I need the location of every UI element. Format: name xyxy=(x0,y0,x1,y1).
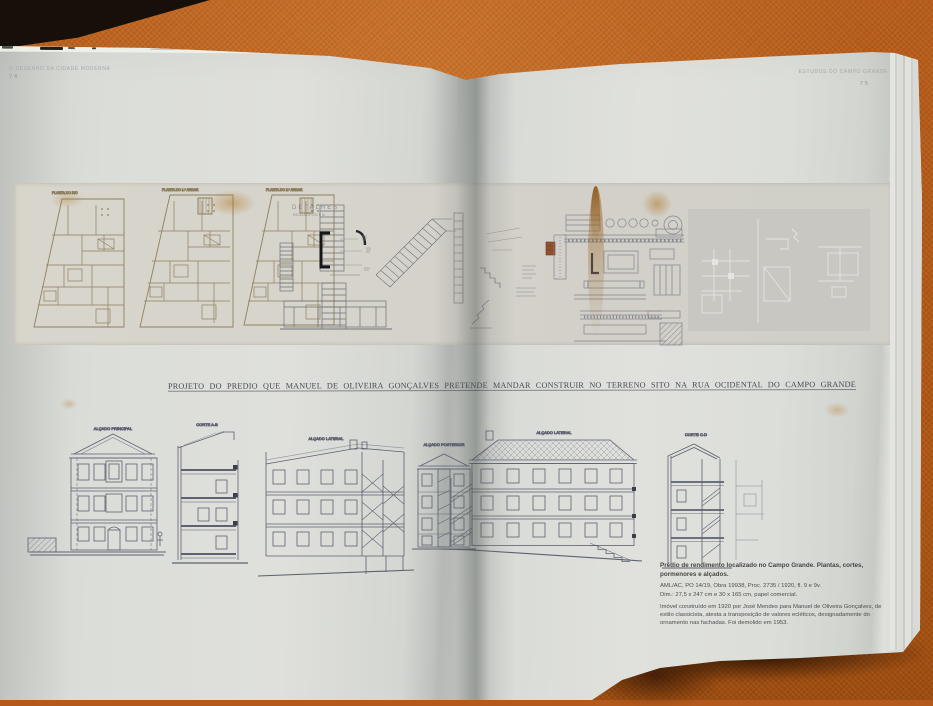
floor-plan-1: PLANTA DO R/C xyxy=(34,191,124,327)
left-running-header: O DESENHO DA CIDADE MODERNA xyxy=(9,66,111,72)
figure-caption: Prédio de rendimento localizado no Campo… xyxy=(660,562,888,632)
white-line-panel xyxy=(688,209,870,331)
caption-heading: Prédio de rendimento localizado no Campo… xyxy=(660,562,888,579)
elevation-lateral-1: ALÇADO LATERAL xyxy=(258,436,414,576)
plan-label: PLANTA DO 1.º ANDAR xyxy=(162,188,199,192)
right-page-number: 75 xyxy=(830,81,870,87)
detalhes-label: DETALHES xyxy=(292,205,339,211)
right-page-stack-edges xyxy=(890,50,922,650)
caption-reference-1: AML/AC, PO 14/19, Obra 19938, Proc. 2735… xyxy=(660,583,888,591)
plan-label: PLANTA DO R/C xyxy=(52,191,78,195)
elevation-label: ALÇADO LATERAL xyxy=(536,430,572,435)
open-book-spread: O DESENHO DA CIDADE MODERNA 74 ESTUDOS D… xyxy=(0,0,933,700)
elevation-front-facade: ALÇADO PRINCIPAL xyxy=(28,426,166,555)
right-running-header: ESTUDOS DO CAMPO GRANDE xyxy=(700,69,888,75)
floor-plan-2: PLANTA DO 1.º ANDAR xyxy=(140,188,233,327)
caption-reference-2: Dim.: 27,5 x 247 cm e 30 x 165 cm, papel… xyxy=(660,592,888,600)
stair-section-strip xyxy=(280,205,346,329)
elevation-label: CORTE A-B xyxy=(196,422,218,427)
page-edge-mark xyxy=(92,47,96,49)
cornice-detail xyxy=(554,215,684,345)
caption-body: Imóvel construído em 1920 por José Mende… xyxy=(660,604,888,628)
section-2: CORTE C-D xyxy=(662,432,764,568)
book-gutter-shadow xyxy=(433,40,515,700)
plan-label: PLANTA DO 2.º ANDAR xyxy=(266,188,303,192)
left-page-number: 74 xyxy=(9,74,19,80)
elevation-label: ALÇADO LATERAL xyxy=(308,436,344,441)
bracket-detail xyxy=(280,231,392,329)
detalhes-sublabel: ESCALA DE 0,01 P. M. xyxy=(293,213,326,217)
page-edge-mark xyxy=(68,47,75,49)
elevation-label: ALÇADO PRINCIPAL xyxy=(94,426,133,431)
left-page-edge-shading xyxy=(0,0,70,700)
page-edge-mark xyxy=(40,46,63,49)
section-1: CORTE A-B xyxy=(172,422,248,563)
elevation-label: CORTE C-D xyxy=(685,432,707,437)
